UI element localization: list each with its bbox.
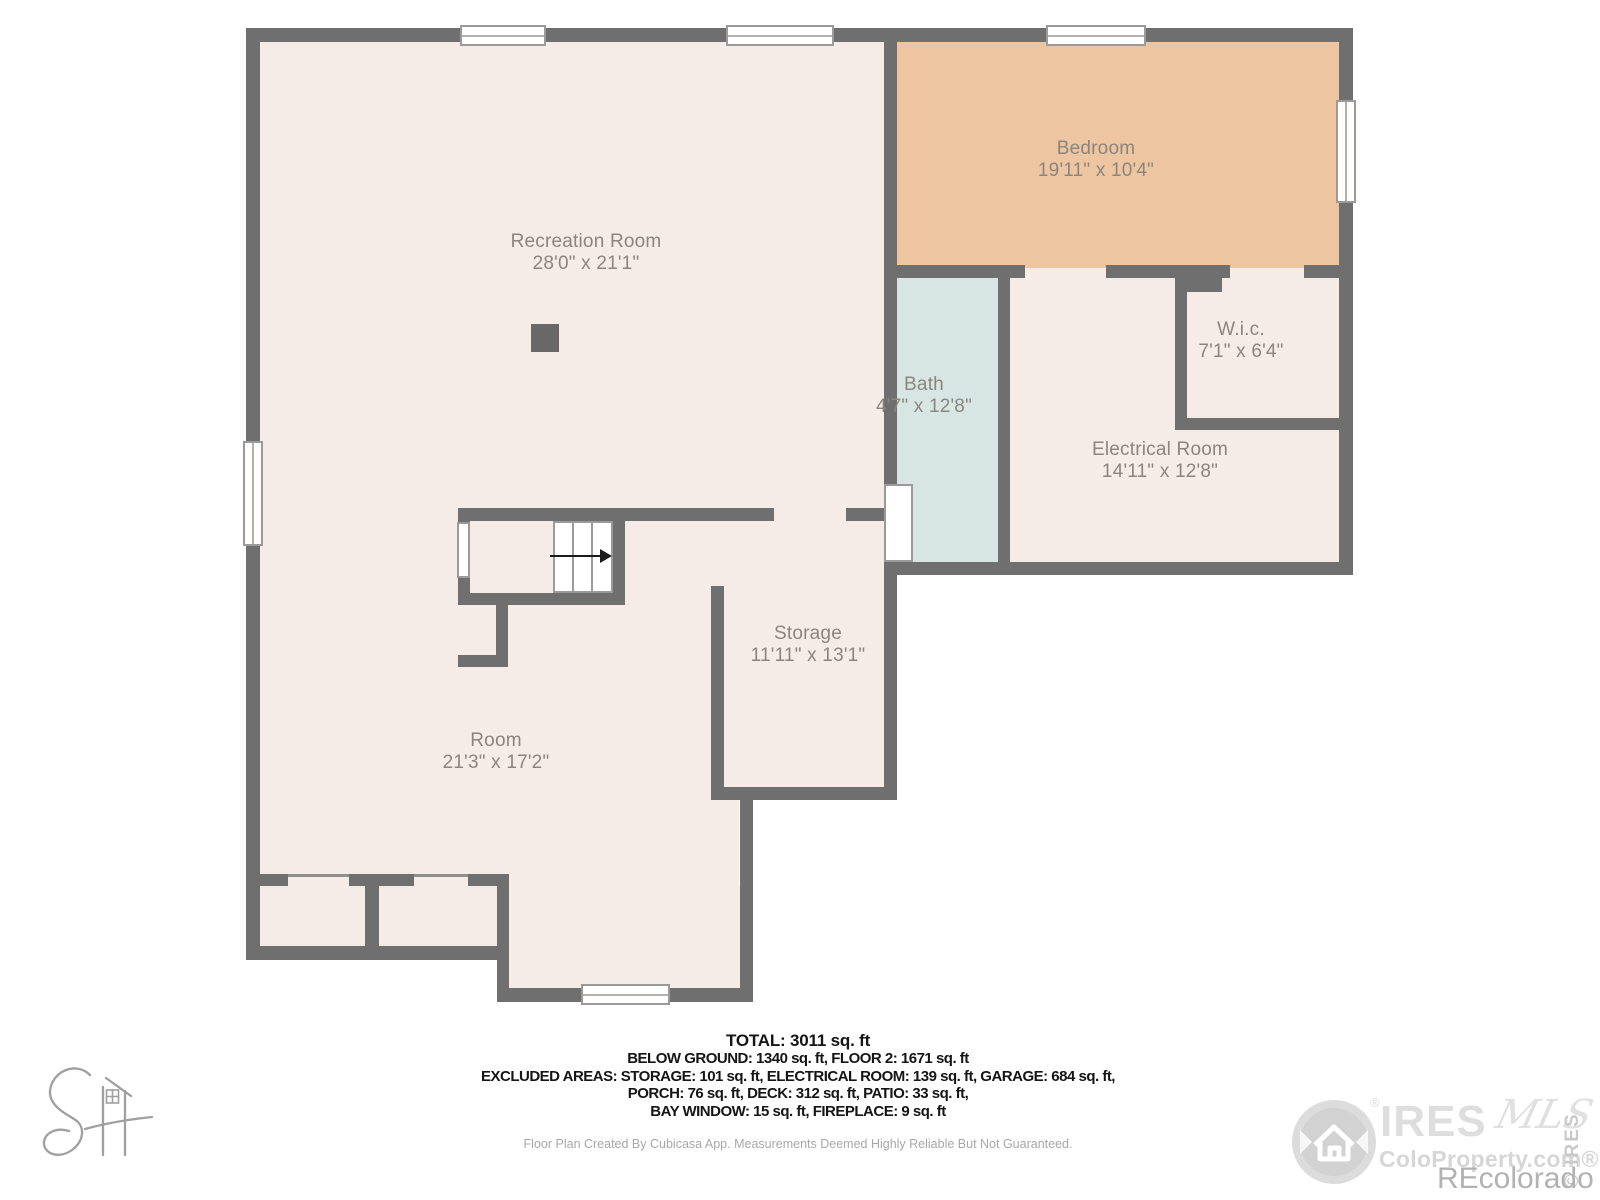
floor-plan-page: Recreation Room 28'0" x 21'1" Bedroom 19…: [0, 0, 1600, 1200]
stair-tread-line: [591, 523, 593, 591]
stair-arrow-head-icon: [600, 549, 612, 563]
window: [457, 522, 470, 578]
summary-line: BELOW GROUND: 1340 sq. ft, FLOOR 2: 1671…: [2, 1050, 1594, 1068]
room-name: Bath: [876, 374, 972, 396]
room-label-room: Room 21'3" x 17'2": [443, 730, 550, 774]
window: [1046, 25, 1146, 46]
wall: [1304, 265, 1353, 278]
room-dimensions: 11'11" x 13'1": [751, 645, 866, 667]
room-name: Room: [443, 730, 550, 752]
room-name: Electrical Room: [1092, 439, 1228, 461]
wall: [497, 874, 509, 1000]
room-label-wic: W.i.c. 7'1" x 6'4": [1198, 319, 1283, 363]
room-dimensions: 21'3" x 17'2": [443, 752, 550, 774]
floor-recreation-room: [260, 42, 884, 513]
opening-line: [288, 874, 349, 877]
room-dimensions: 14'11" x 12'8": [1092, 461, 1228, 483]
stair-direction-arrow: [550, 555, 601, 557]
room-label-storage: Storage 11'11" x 13'1": [751, 623, 866, 667]
window: [1336, 100, 1356, 203]
window: [581, 984, 670, 1005]
floor-room-extension: [509, 886, 753, 1000]
room-dimensions: 28'0" x 21'1": [511, 253, 662, 275]
bath-door: [884, 484, 913, 562]
recolorado-wordmark: REcolorado: [1437, 1162, 1594, 1196]
registered-mark: ®: [1370, 1095, 1380, 1110]
room-name: Recreation Room: [511, 231, 662, 253]
sh-logo-window-panes: [107, 1090, 119, 1103]
stair-tread-line: [572, 523, 574, 591]
wall: [458, 655, 508, 667]
wall: [246, 946, 497, 960]
wall: [998, 265, 1010, 562]
room-name: Bedroom: [1038, 138, 1154, 160]
room-label-electrical: Electrical Room 14'11" x 12'8": [1092, 439, 1228, 483]
room-dimensions: 7'1" x 6'4": [1198, 341, 1283, 363]
wall: [252, 874, 288, 886]
room-dimensions: 4'7" x 12'8": [876, 396, 972, 418]
room-dimensions: 19'11" x 10'4": [1038, 160, 1154, 182]
house-icon: [1292, 1100, 1376, 1184]
sh-logo-crossbar: [85, 1117, 152, 1129]
room-name: W.i.c.: [1198, 319, 1283, 341]
wall: [740, 787, 753, 1002]
room-label-bath: Bath 4'7" x 12'8": [876, 374, 972, 418]
ires-wordmark: IRES: [1380, 1097, 1487, 1147]
wall: [1175, 265, 1187, 430]
wall: [711, 586, 724, 800]
ires-house-logo-icon: [1292, 1100, 1376, 1184]
wall: [613, 508, 625, 605]
wall: [1175, 418, 1353, 430]
wall: [884, 562, 1353, 575]
total-area-text: TOTAL: 3011 sq. ft: [2, 1031, 1594, 1050]
opening-line: [414, 874, 468, 877]
support-column: [531, 324, 559, 352]
window: [460, 25, 546, 46]
summary-line: EXCLUDED AREAS: STORAGE: 101 sq. ft, ELE…: [2, 1068, 1594, 1086]
wall: [884, 562, 897, 800]
sh-logo-s-stroke: [44, 1068, 90, 1154]
room-name: Storage: [751, 623, 866, 645]
sh-logo: [42, 1053, 207, 1188]
window: [726, 25, 834, 46]
window: [243, 441, 263, 546]
room-label-bedroom: Bedroom 19'11" x 10'4": [1038, 138, 1154, 182]
wall: [458, 593, 625, 605]
room-label-recreation: Recreation Room 28'0" x 21'1": [511, 231, 662, 275]
wall: [349, 874, 414, 886]
wall: [1106, 265, 1230, 278]
